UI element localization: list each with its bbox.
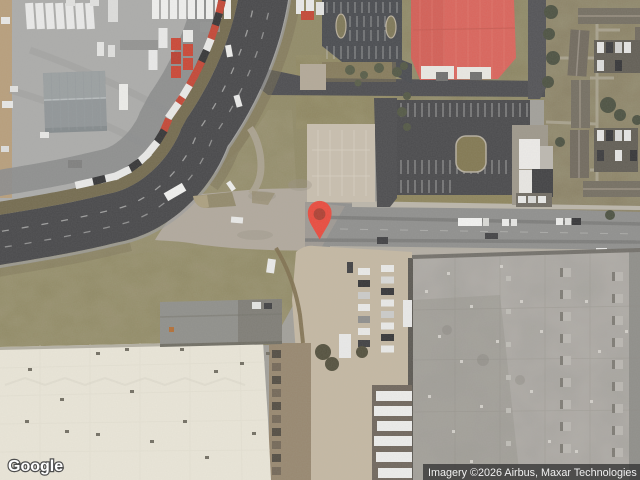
svg-text:Google: Google <box>8 458 63 475</box>
svg-text:Imagery ©2026 Airbus, Maxar Te: Imagery ©2026 Airbus, Maxar Technologies <box>428 467 637 479</box>
